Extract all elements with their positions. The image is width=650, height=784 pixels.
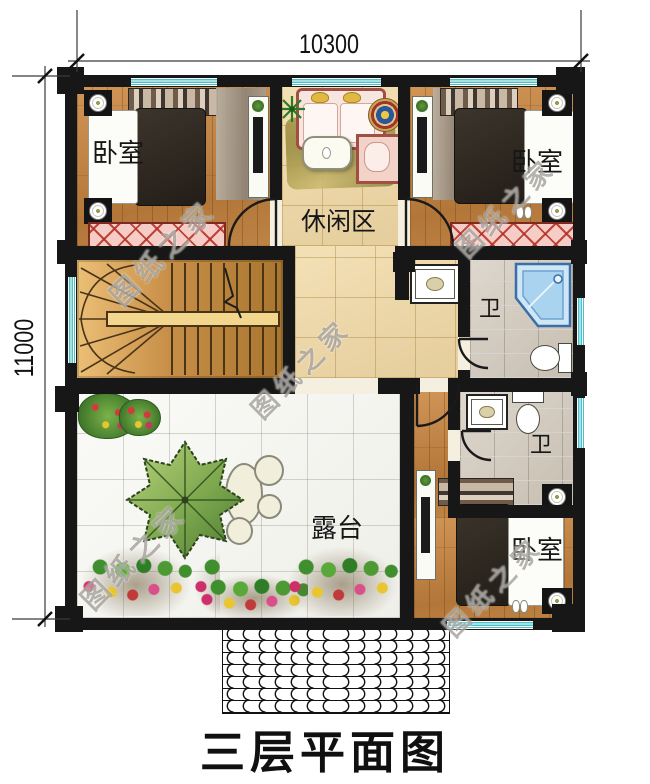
door-opening — [448, 430, 460, 461]
wall-segment — [398, 87, 410, 200]
lamp-plate — [548, 488, 566, 506]
room-label-bath-lower: 卫 — [530, 427, 552, 459]
wall-segment — [448, 392, 460, 430]
wall-segment — [448, 461, 460, 505]
tv-screen — [253, 117, 263, 173]
lamp-plate — [89, 94, 107, 112]
sink — [410, 264, 460, 304]
tree — [119, 399, 161, 436]
tv-cabinet-right-bedroom — [412, 96, 433, 198]
window — [67, 277, 76, 363]
room-label-bedroom-left: 卧室 — [92, 133, 144, 170]
wall-segment — [270, 87, 282, 200]
tv-cabinet-left-bedroom — [248, 96, 269, 198]
column — [571, 372, 587, 396]
room-label-terrace: 露台 — [311, 508, 363, 545]
column — [552, 604, 585, 632]
door-opening — [458, 337, 470, 370]
toilet-bowl — [530, 345, 560, 371]
wall-segment — [458, 260, 470, 337]
column — [55, 386, 79, 412]
room-label-bath-upper: 卫 — [479, 291, 501, 323]
column — [393, 252, 415, 272]
column — [556, 67, 585, 94]
window — [450, 77, 537, 86]
room-label-leisure: 休闲区 — [301, 202, 376, 238]
nightstand — [542, 198, 572, 224]
armchair — [356, 134, 402, 184]
door-opening — [398, 199, 410, 246]
dimension-label-left: 11000 — [10, 319, 40, 377]
toilet-tank — [558, 343, 572, 373]
garden-stone — [257, 494, 282, 519]
door-opening — [420, 378, 448, 392]
slippers-icon — [520, 600, 528, 613]
window — [576, 398, 585, 448]
flower-bed — [286, 546, 402, 616]
garden-stone — [254, 455, 284, 486]
canopy-roof — [222, 628, 450, 714]
tv-cabinet-bottom-bedroom — [416, 470, 436, 580]
wall-segment — [448, 378, 585, 392]
armchair-cushion — [364, 142, 390, 172]
column — [55, 606, 83, 632]
wall-segment — [448, 505, 585, 518]
dimension-label-top: 10300 — [299, 30, 359, 60]
slippers-icon — [512, 600, 520, 613]
wall-segment — [400, 392, 414, 618]
window — [292, 77, 381, 86]
tv-screen — [417, 117, 427, 173]
nightstand — [84, 90, 112, 116]
window — [131, 77, 217, 86]
window — [576, 298, 585, 345]
door-opening — [270, 199, 282, 246]
lamp-plate — [548, 202, 566, 220]
plant-icon — [420, 475, 431, 486]
toilet — [528, 342, 572, 372]
nightstand — [84, 198, 112, 224]
column — [57, 67, 84, 94]
sofa-pillow — [343, 92, 361, 103]
lamp-plate — [548, 94, 566, 112]
wall-segment — [573, 75, 585, 630]
column — [571, 240, 587, 264]
drawing-title: 三层平面图 — [0, 716, 650, 781]
plant-icon — [252, 100, 264, 112]
plant-icon — [278, 94, 306, 124]
table-decor — [322, 147, 331, 159]
sink — [466, 394, 508, 430]
tv-screen — [421, 497, 430, 553]
coffee-table — [302, 136, 352, 170]
floorplan-canvas: 10300 11000 卧室 卧室 卧室 休闲区 卫 卫 露台 图纸之家 图纸之… — [0, 0, 650, 784]
corner-shower — [514, 262, 572, 328]
plant-icon — [416, 100, 428, 112]
stair-handrail — [107, 312, 279, 326]
column — [57, 240, 73, 264]
sofa-pillow — [311, 92, 329, 103]
decor-plate — [368, 98, 402, 132]
lamp-plate — [89, 202, 107, 220]
